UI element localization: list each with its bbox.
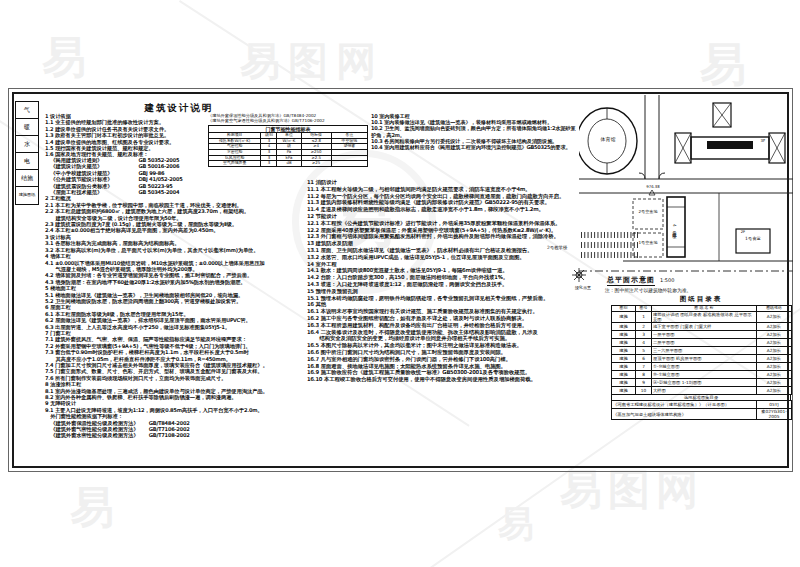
site-plan-label-main-building: 4号教学楼 <box>671 201 676 255</box>
text-line: 14.1 散水：建筑四周设800宽混凝土散水，做法见05YJ9-1，每隔6m设伸… <box>307 267 581 274</box>
table-cell: 建施 <box>612 363 636 371</box>
text-line: 11.1 本工程耐火等级为二级，与相邻建筑间距均满足防火规范要求，消防车道宽度不… <box>307 186 581 193</box>
table-cell: 建施 <box>612 311 636 322</box>
atlas-body: 《河南省工程建设标准设计（建筑标准图集）》（详见各图）05YJ《蒸压加气混凝土砌… <box>612 401 792 420</box>
watermark-logo-icon: 易 <box>700 34 746 96</box>
site-plan-label-canteen: 1号食堂 <box>737 237 769 242</box>
text-line: 10.4 室内用建筑材料应符合《民用建筑工程室内环境污染控制规范》GB50325… <box>371 144 577 150</box>
site-plan-label-school2: 2号教学楼 <box>547 245 589 250</box>
site-plan-label-lot2: 2号空余地 <box>634 210 662 215</box>
text-line: 结施 <box>16 170 38 187</box>
drawing-index: 图纸目录表 图别图号图 纸 名 称图纸规格 建施1建筑设计说明 图纸目录表 标准… <box>611 295 791 420</box>
table-cell: 7 <box>636 363 652 371</box>
table-cell: 一层平面图 <box>652 331 757 339</box>
site-plan-label-library-storey: 3F <box>757 139 769 143</box>
text-line: 11.2 每层为一个防火分区，每个防火分区均设两个安全出口，疏散楼梯间直通屋面，… <box>307 193 581 200</box>
text-line: 4.1 ±0.000以下墙体采用MU10烧结页岩砖，M10水泥砂浆砌筑；±0.0… <box>45 260 300 266</box>
sign-strip: 气暖水电结施建施图纸 <box>15 101 39 205</box>
table-cell: A2加长 <box>757 355 792 363</box>
table-row: 空气声隔声量3dB≥25 <box>209 161 368 167</box>
drawing-index-body: 建施1建筑设计说明 图纸目录表 标准构造做法表 总平面示意图A2加长建施2地下室… <box>612 311 792 394</box>
table-row: 建施7①-⑩轴立面图A2加长 <box>612 363 792 371</box>
table-cell: 3 <box>261 161 277 167</box>
window-table-title: 门窗节能性能指标表 <box>208 125 368 132</box>
table-row: 《蒸压加气混凝土砌块墙体建筑构造》豫02YG301-2005 <box>612 409 792 420</box>
table-row: 建施5三~六层平面图A2加长 <box>612 347 792 355</box>
design-notes-col1-main: 《民用建筑设计通则》 GB 50352-2005 《建筑设计防火规范》 GB 5… <box>45 157 300 439</box>
drawing-index-title: 图纸目录表 <box>611 295 791 304</box>
table-row: 建施6屋顶平面图 机房层平面图A2加长 <box>612 355 792 363</box>
table-row: 建施9Ⓐ-Ⓓ轴立面图 1-1剖面图A2加长 <box>612 379 792 387</box>
table-cell: 05YJ <box>757 401 792 409</box>
text-line: 16.7 凡与室外相通的门窗均加设密封条，外门设闭门器，管井检修门下设100高门… <box>307 356 581 363</box>
site-plan-drawing <box>579 95 793 291</box>
table-cell: 5 <box>636 347 652 355</box>
table-cell: 1 <box>636 311 652 322</box>
text-line: 11 消防设计 <box>307 179 581 186</box>
text-line: 12 节能设计 <box>307 213 581 220</box>
table-cell: A2加长 <box>757 363 792 371</box>
text-line: 13.2 水落管、雨水口均采用UPVC成品，做法详见05YJ5-1，位置详见屋顶… <box>307 254 581 261</box>
text-line: 12.1 本工程按《公共建筑节能设计标准》进行节能设计，外墙采用35厚胶粉聚苯颗… <box>307 220 581 227</box>
table-row: 气密性能4级≥4塑钢窗 <box>209 144 368 150</box>
site-plan: 体育馆 图书馆 3F 2号空余地 1号空余地 4号教学楼 1号食堂 2F 976… <box>579 95 793 291</box>
text-line: 12.3 外门窗框与墙体间缝隙采用聚氨酯发泡材料密封，外墙出挑构件及附墙部件均做… <box>307 233 581 240</box>
text-line: 水 <box>16 136 38 153</box>
table-cell: A2加长 <box>757 387 792 395</box>
text-line: 16.9 施工验收应符合《建筑工程施工质量验收统一标准》GB50300-2001… <box>307 369 581 376</box>
text-line: 16.8 屋面避雷、接地做法详见电施图；太阳能热水系统预留条件详见水施、电施图。 <box>307 363 581 370</box>
plan-caption-row: 总平面示意图1:500 <box>607 275 747 285</box>
table-cell: 二层平面图 <box>652 339 757 347</box>
table-cell: Ⓐ-Ⓓ轴立面图 1-1剖面图 <box>652 379 757 387</box>
window-standard-refs: 《建筑外窗保温性能分级及其检测方法》GB/T8484-2002《建筑外窗空气渗透… <box>208 113 370 123</box>
watermark-sitename: 易图网 <box>240 34 384 89</box>
table-cell: 空气声隔声量 <box>209 161 261 167</box>
text-line: 16.10 本工程竣工验收合格后方可交付使用，使用中不得随意改变房间使用性质及增… <box>307 376 581 383</box>
watermark-logo-icon: 易 <box>70 478 114 537</box>
table-cell: 豫02YG301-2005 <box>757 409 792 420</box>
text-line: 13.1 屋面、卫生间防水做法详见《建筑做法一览表》，防水材料必须有出厂合格证及… <box>307 247 581 254</box>
text-line: 建施图纸 <box>16 187 38 204</box>
text-line: 16.5 本图尺寸除标高以米计外，其余均以毫米计；图中未注明之做法详见标准构造做… <box>307 342 581 349</box>
table-cell: 建施 <box>612 387 636 395</box>
site-plan-label-canteen-storey: 2F <box>737 230 749 234</box>
table-cell: ≥25 <box>301 161 331 167</box>
table-cell: 屋顶平面图 机房层平面图 <box>652 355 757 363</box>
table-cell: 建施 <box>612 371 636 379</box>
plan-caption: 总平面示意图 <box>607 276 655 286</box>
text-line: 14.3 坡道：入口处无障碍坡道坡度1:12，面层做防滑处理，两侧设安全挡台及扶… <box>307 281 581 288</box>
table-cell: A2加长 <box>757 323 792 331</box>
text-line: 16.6 图中所注门窗洞口尺寸均为结构洞口尺寸，施工时应预留饰面厚度及安装间隙。 <box>307 349 581 356</box>
table-cell: 《河南省工程建设标准设计（建筑标准图集）》（详见各图） <box>612 401 757 409</box>
table-cell: 三~六层平面图 <box>652 347 757 355</box>
site-plan-label-gym: 体育馆 <box>591 137 625 143</box>
table-cell: A2加长 <box>757 311 792 322</box>
plan-scale: 1:500 <box>660 277 674 283</box>
table-cell: 3 <box>636 331 652 339</box>
window-performance-table: 门窗节能性能指标表 检测项目级别单位指标值备注 传热系数W/(㎡·K)3W/㎡·… <box>208 125 368 167</box>
table-row: 建施1建筑设计说明 图纸目录表 标准构造做法表 总平面示意图A2加长 <box>612 311 792 322</box>
site-plan-elevation: 976.38 <box>639 185 667 189</box>
site-plan-label-green: 绿化示意 <box>565 285 601 290</box>
table-cell: ①-⑩轴立面图 <box>652 363 757 371</box>
text-line: 12.2 屋面采用40厚挤塑聚苯板保温层；外窗采用塑钢中空玻璃窗(5+9A+5)… <box>307 227 581 234</box>
table-row: 建施8⑩-①轴立面图A2加长 <box>612 371 792 379</box>
text-line: 气 <box>16 102 38 119</box>
table-row: 建施3一层平面图A2加长 <box>612 331 792 339</box>
site-plan-label-lot1: 1号空余地 <box>634 241 662 246</box>
tree-icon <box>571 267 587 283</box>
table-cell: 6 <box>636 355 652 363</box>
table-row: 《河南省工程建设标准设计（建筑标准图集）》（详见各图）05YJ <box>612 401 792 409</box>
table-cell: 建施 <box>612 323 636 331</box>
sheet-frame: 气暖水电结施建施图纸 建筑设计说明 1 设计依据1.1 业主提供的经规划部门批准… <box>8 88 793 472</box>
text-line: 16 其他 <box>307 301 581 308</box>
table-cell: 建施 <box>612 355 636 363</box>
table-row: 传热系数W/(㎡·K)3W/㎡·K≤2.8中空玻璃 <box>209 138 368 144</box>
table-row: 建施2地下室平面图 门窗表 门窗大样A2加长 <box>612 323 792 331</box>
text-line: 15.1 预埋木砖均做防腐处理，露明铁件均做防锈处理，各专业预留孔洞详见相关专业… <box>307 295 581 302</box>
table-cell: 建施 <box>612 347 636 355</box>
table-cell: 大样图 <box>652 387 757 395</box>
text-line: 16.2 施工中应与各专业图纸密切配合，如有矛盾及不详之处，请及时与设计人联系协… <box>307 315 581 322</box>
table-row: 建施4二层平面图A2加长 <box>612 339 792 347</box>
text-line: 16.1 本说明未尽事宜均按国家现行有关设计规范、施工质量验收规范及标准图集的有… <box>307 308 581 315</box>
table-cell: 《蒸压加气混凝土砌块墙体建筑构造》 <box>612 409 757 420</box>
table-cell: 建施 <box>612 339 636 347</box>
text-line: 16.4 二次装修设计及改造时，不得随意改变建筑使用功能、拆改主体结构及影响消防… <box>307 329 581 336</box>
text-line: 《建筑外窗水密性能分级及检测方法》 GB/T7108-2002 <box>45 432 300 438</box>
plan-note: 注：图中所注尺寸以建筑物外轮廓为准。 <box>605 287 795 293</box>
table-cell: 4 <box>636 339 652 347</box>
text-line: 11.3 建筑内部装修材料燃烧性能等级均满足《建筑内部装修设计防火规范》GB50… <box>307 199 581 206</box>
design-notes-col1-top: 1 设计依据1.1 业主提供的经规划部门批准的修改性设计方案。1.2 建设单位提… <box>45 113 205 158</box>
text-line: 电 <box>16 153 38 170</box>
site-plan-label-library: 图书馆 <box>709 144 751 150</box>
table-cell: 2 <box>636 323 652 331</box>
text-line: 14.2 台阶：入口台阶踏步宽300，高150，面层做法同相邻地面，平台向外找坡… <box>307 274 581 281</box>
table-cell: dB <box>277 161 301 167</box>
table-cell: 建施 <box>612 379 636 387</box>
table-cell: 地下室平面图 门窗表 门窗大样 <box>652 323 757 331</box>
text-line: 7.5 门窗立面形式、数量、尺寸、色彩、开启方式、型材、玻璃及五金配件详见门窗表… <box>45 368 300 374</box>
design-notes-mid-top: 10 室内装修工程10.1 室内装修做法详见《建筑做法一览表》，装修材料均采用非… <box>371 113 577 150</box>
table-cell: ⑩-①轴立面图 <box>652 371 757 379</box>
table-cell: A2加长 <box>757 371 792 379</box>
text-line: 15 预埋件及预留孔洞 <box>307 288 581 295</box>
table-row: 建施10大样图A2加长 <box>612 387 792 395</box>
table-cell: 建筑设计说明 图纸目录表 标准构造做法表 总平面示意图 <box>652 311 757 322</box>
table-cell: A2加长 <box>757 339 792 347</box>
text-line: 《建筑外窗空气渗透性能分级及其检测方法》GB/T7106-2002 <box>208 118 370 123</box>
table-cell: 建施 <box>612 331 636 339</box>
text-line: 结构安全及消防安全的变更，均须经原设计单位同意并办理相关手续后方可实施。 <box>307 335 581 342</box>
table-cell <box>331 161 367 167</box>
text-line: 14 室外工程 <box>307 261 581 268</box>
text-line: 暖 <box>16 119 38 136</box>
table-cell: 10 <box>636 387 652 395</box>
table-cell: A2加长 <box>757 379 792 387</box>
table-cell: A2加长 <box>757 347 792 355</box>
text-line: 16.3 本工程所选用建筑材料、构配件及设备均应有出厂合格证明，并经检验合格后方… <box>307 322 581 329</box>
window-table-body: 传热系数W/(㎡·K)3W/㎡·K≤2.8中空玻璃气密性能4级≥4塑钢窗水密性能… <box>209 138 368 166</box>
design-notes-col2-main: 11 消防设计11.1 本工程耐火等级为二级，与相邻建筑间距均满足防火规范要求，… <box>307 179 581 383</box>
text-line: 10.2 卫生间、盥洗间墙面贴白色瓷砖到顶，颜色由甲方定；所有墙体阳角均做1:2… <box>371 125 577 137</box>
text-line: 13 建筑防水及防潮 <box>307 240 581 247</box>
watermark-logo-icon: 易 <box>42 28 86 87</box>
table-cell: A2加长 <box>757 331 792 339</box>
table-cell: 9 <box>636 379 652 387</box>
text-line: 11.4 走道及楼梯间设应急照明和疏散指示标志，疏散走道净宽不小于1.8m，梯段… <box>307 206 581 213</box>
table-cell: 8 <box>636 371 652 379</box>
